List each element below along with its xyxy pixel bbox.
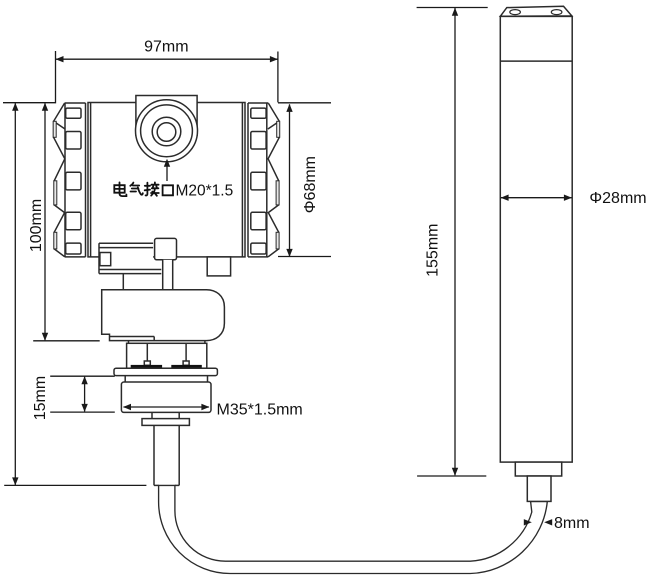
- svg-text:M35*1.5mm: M35*1.5mm: [217, 402, 303, 419]
- svg-text:155mm: 155mm: [424, 224, 441, 277]
- svg-text:Φ28mm: Φ28mm: [589, 190, 646, 207]
- svg-text:8mm: 8mm: [554, 515, 590, 532]
- svg-text:97mm: 97mm: [144, 39, 188, 56]
- svg-text:100mm: 100mm: [28, 199, 45, 252]
- svg-text:15mm: 15mm: [32, 376, 49, 420]
- svg-text:M20*1.5: M20*1.5: [176, 183, 234, 200]
- svg-text:Φ68mm: Φ68mm: [302, 156, 319, 213]
